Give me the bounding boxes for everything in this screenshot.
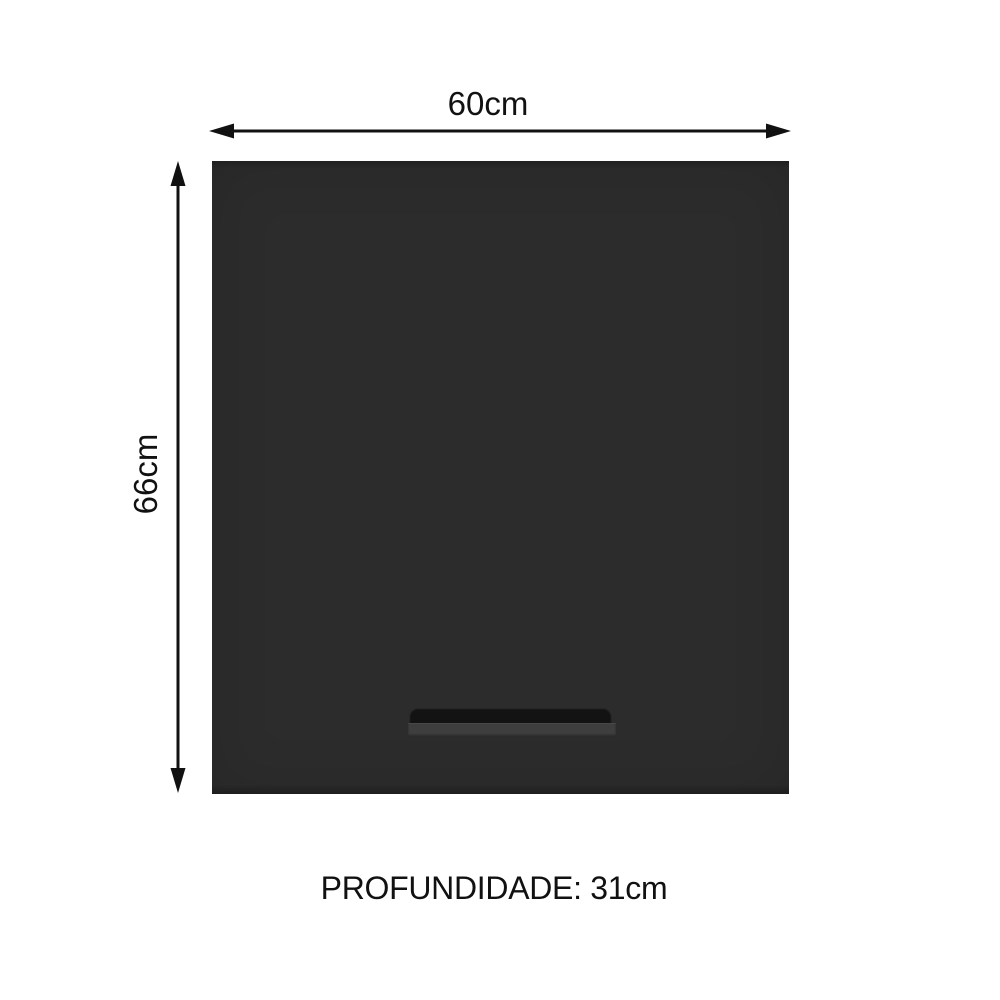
width-dimension-arrow-icon (208, 120, 792, 142)
width-arrow-head-right (766, 124, 791, 139)
height-dimension-arrow-icon (167, 160, 189, 794)
cabinet-front-panel (212, 161, 789, 794)
width-arrow-head-left (209, 124, 234, 139)
handle-recess-shadow (410, 709, 611, 724)
product-dimension-diagram: 60cm 66cm PROFUNDIDADE: 31cm (0, 0, 1000, 1000)
height-dimension-label: 66cm (128, 434, 164, 515)
height-arrow-head-top (171, 161, 186, 186)
width-dimension-label: 60cm (208, 86, 768, 122)
cabinet-handle (408, 723, 616, 737)
depth-dimension-label: PROFUNDIDADE: 31cm (194, 870, 794, 906)
height-arrow-head-bottom (171, 768, 186, 793)
